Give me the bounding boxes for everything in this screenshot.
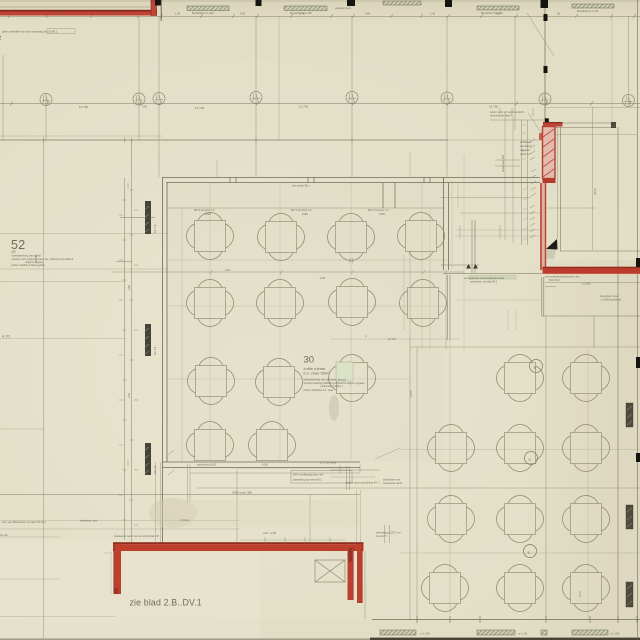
svg-text:30: 30 <box>304 355 315 366</box>
svg-text:17.94: 17.94 <box>388 337 396 341</box>
svg-text:36.00: 36.00 <box>593 188 597 195</box>
svg-text:detail 12: detail 12 <box>520 152 530 156</box>
svg-text:5.0.5: 5.0.5 <box>578 591 582 597</box>
svg-text:1.57 zie wand: 1.57 zie wand <box>320 461 337 465</box>
svg-text:MK 5 Comfort 1,0: MK 5 Comfort 1,0 <box>194 208 215 212</box>
svg-text:nr 1.241: nr 1.241 <box>518 632 528 636</box>
svg-text:2.6 loop: 2.6 loop <box>180 518 190 522</box>
svg-text:bestaande wand: bestaande wand <box>383 481 403 485</box>
svg-text:2.40: 2.40 <box>430 12 436 16</box>
svg-text:kzn 1.6: kzn 1.6 <box>153 346 157 355</box>
svg-text:dakrand: dakrand <box>520 148 530 152</box>
svg-text:bevestiging 125°/ mm: bevestiging 125°/ mm <box>376 531 401 535</box>
svg-text:een breed 38 c: een breed 38 c <box>292 184 310 188</box>
svg-text:3.60: 3.60 <box>240 12 246 16</box>
svg-text:nr 1.240: nr 1.240 <box>420 632 430 636</box>
svg-text:aansluiten met: aansluiten met <box>383 478 400 482</box>
svg-text:plinten hardhout blank gelakt: plinten hardhout blank gelakt <box>12 263 45 267</box>
svg-text:gflS: gflS <box>12 250 17 254</box>
svg-text:zie blad 9: zie blad 9 <box>520 144 532 148</box>
svg-text:1.95: 1.95 <box>175 12 181 16</box>
svg-text:2.28: 2.28 <box>110 12 116 16</box>
svg-text:Bouwblad nr 1.236: Bouwblad nr 1.236 <box>481 11 503 15</box>
svg-text:1600: 1600 <box>205 212 211 216</box>
svg-text:b.v. vloer 59m²: b.v. vloer 59m² <box>304 371 331 376</box>
svg-text:3.60: 3.60 <box>127 284 131 290</box>
svg-text:aansluiting op wand 49.1: aansluiting op wand 49.1 <box>293 478 322 482</box>
svg-text:14.760: 14.760 <box>489 105 499 109</box>
svg-text:bovenkant vloer: bovenkant vloer <box>600 294 618 298</box>
svg-text:4.50: 4.50 <box>320 276 326 280</box>
svg-text:2.84: 2.84 <box>225 268 231 272</box>
svg-text:afwerking vloer: afwerking vloer <box>80 519 98 523</box>
svg-text:kom van 2650 boven op blad 2: kom van 2650 boven op blad 2.B.49.1 <box>2 520 46 524</box>
svg-text:Bouwblad nr 1.235: Bouwblad nr 1.235 <box>290 11 312 15</box>
svg-text:± 2.850: ± 2.850 <box>582 282 591 286</box>
svg-text:kzn 1.6: kzn 1.6 <box>153 465 157 474</box>
svg-text:een gedeelte met bestaande wan: een gedeelte met bestaande wand <box>464 276 504 280</box>
svg-text:MK 5 Comfort 1,0: MK 5 Comfort 1,0 <box>368 208 389 212</box>
svg-text:Bouwblad nr 1.237: Bouwblad nr 1.237 <box>577 9 599 13</box>
svg-text:3.60: 3.60 <box>365 12 371 16</box>
svg-text:12.760: 12.760 <box>299 105 309 109</box>
svg-text:totaal ± vloer aansluiting: totaal ± vloer aansluiting 49°.1 <box>345 481 380 485</box>
svg-text:nr 1.242: nr 1.242 <box>610 632 620 636</box>
svg-text:kzn 1.6: kzn 1.6 <box>153 224 157 233</box>
svg-text:verd. +2.85: verd. +2.85 <box>263 531 277 535</box>
svg-text:4.70: 4.70 <box>2 334 11 339</box>
svg-text:geen onderdeel van deze aanvra: geen onderdeel van deze aanvraag zie 2.B… <box>2 30 58 34</box>
svg-text:14.05: 14.05 <box>409 390 413 397</box>
svg-text:bestaande wand zie opmeting b: bestaande wand zie opmeting blad 2.B <box>114 534 159 538</box>
svg-text:WBS hoek 380: WBS hoek 380 <box>232 491 252 495</box>
svg-text:aansluiting 1600: aansluiting 1600 <box>197 463 216 467</box>
svg-text:zie blad 2.B..DV.1: zie blad 2.B..DV.1 <box>130 598 202 608</box>
svg-text:1600: 1600 <box>302 212 308 216</box>
svg-text:2.20: 2.20 <box>127 392 131 398</box>
svg-text:WK5 verdiepingsvloer met: WK5 verdiepingsvloer met <box>293 473 324 477</box>
svg-text:zie det. 5: zie det. 5 <box>376 534 387 538</box>
svg-text:vloerafwerking cem.dekvloer m: vloerafwerking cem.dekvloer met zeil <box>304 377 347 381</box>
svg-text:1600: 1600 <box>262 463 268 467</box>
svg-text:zie det.: zie det. <box>0 533 9 537</box>
svg-text:lichtstraat: lichtstraat <box>520 140 531 144</box>
svg-text:afmeting zie blad 7: afmeting zie blad 7 <box>490 113 512 117</box>
svg-text:14.40: 14.40 <box>34 255 38 263</box>
svg-text:1600: 1600 <box>379 212 385 216</box>
svg-text:MK 5 Comfort 1,0: MK 5 Comfort 1,0 <box>291 208 312 212</box>
svg-text:Bouwblad nr 1.234: Bouwblad nr 1.234 <box>192 11 214 15</box>
svg-text:bouwmuur 250: bouwmuur 250 <box>501 154 505 172</box>
svg-text:plinten hardhout b.k. vloer: plinten hardhout b.k. vloer <box>304 388 334 392</box>
svg-text:gevelpui stelk.: gevelpui stelk. <box>335 6 352 10</box>
svg-text:aansluiten zie blad 49.1: aansluiten zie blad 49.1 <box>470 280 498 284</box>
svg-text:0.60: 0.60 <box>142 105 148 109</box>
svg-text:+ 2.850 (gedeelte): + 2.850 (gedeelte) <box>600 298 621 302</box>
svg-text:B.Nr 49.1: B.Nr 49.1 <box>549 278 561 282</box>
svg-text:14.760: 14.760 <box>79 105 89 109</box>
svg-text:14.760: 14.760 <box>195 106 205 110</box>
svg-text:( aanwezig houten ): ( aanwezig houten ) <box>320 384 343 388</box>
